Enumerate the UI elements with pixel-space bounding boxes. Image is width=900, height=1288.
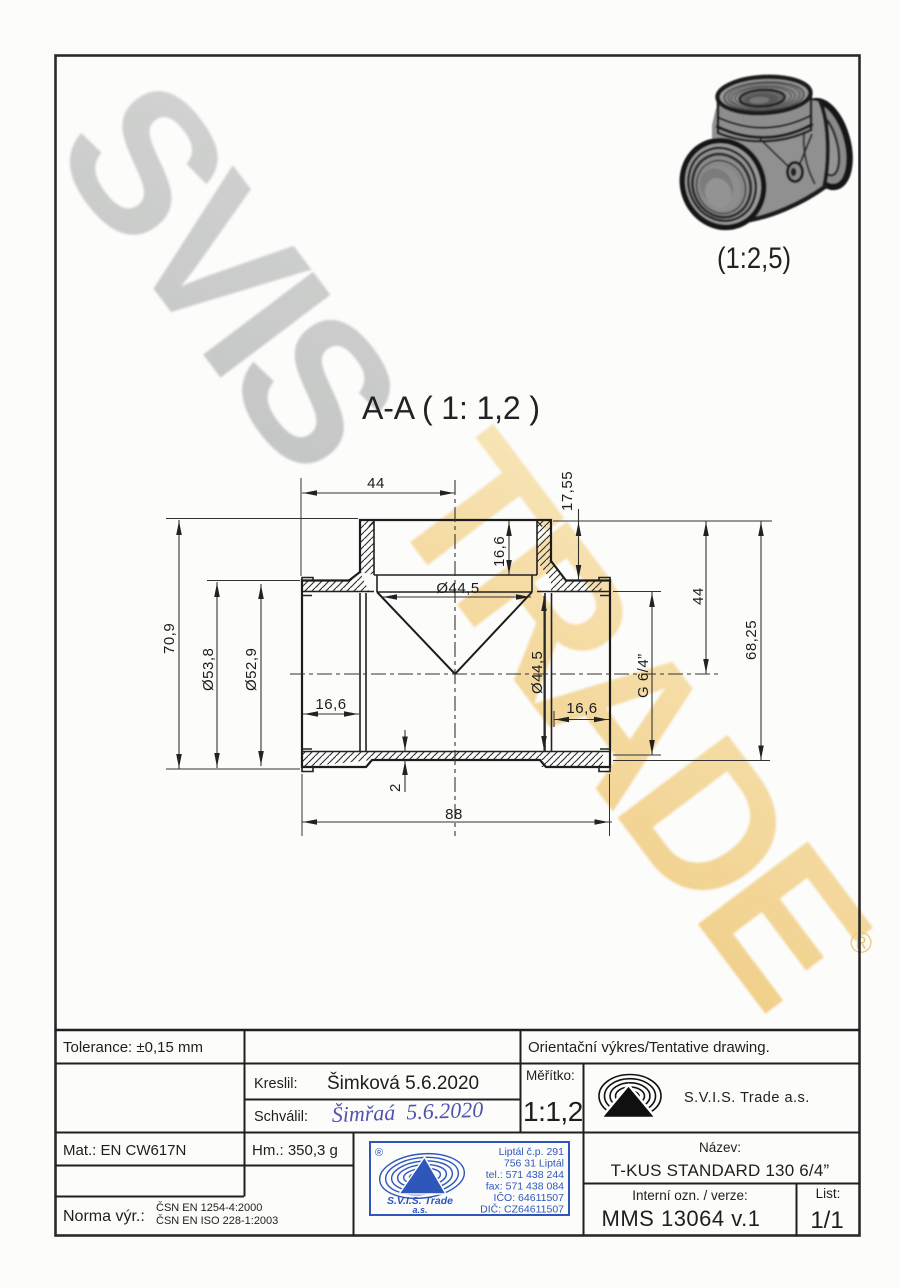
svg-text:1:1,2: 1:1,2 — [523, 1096, 583, 1127]
svg-text:S.V.I.S. Trade a.s.: S.V.I.S. Trade a.s. — [684, 1090, 810, 1106]
svg-text:Orientační výkres/Tentative dr: Orientační výkres/Tentative drawing. — [528, 1039, 770, 1056]
svg-text:2: 2 — [387, 783, 404, 792]
svg-text:Interní ozn. / verze:: Interní ozn. / verze: — [632, 1188, 748, 1203]
svg-text:17,55: 17,55 — [559, 471, 576, 511]
svg-text:(1:2,5): (1:2,5) — [717, 242, 791, 275]
svg-text:T-KUS STANDARD 130 6/4”: T-KUS STANDARD 130 6/4” — [611, 1161, 830, 1180]
svg-text:70,9: 70,9 — [161, 623, 178, 654]
svg-text:Šimková 5.6.2020: Šimková 5.6.2020 — [327, 1072, 479, 1094]
svg-text:Hm.: 350,3 g: Hm.: 350,3 g — [252, 1142, 338, 1159]
svg-text:ČSN EN ISO 228-1:2003: ČSN EN ISO 228-1:2003 — [156, 1214, 278, 1227]
svg-text:IČO: 64611507: IČO: 64611507 — [494, 1191, 565, 1204]
svg-text:Kreslil:: Kreslil: — [254, 1076, 298, 1092]
svg-text:1/1: 1/1 — [810, 1207, 843, 1234]
svg-text:Šimřaá 5.6.2020: Šimřaá 5.6.2020 — [331, 1097, 483, 1127]
svg-text:16,6: 16,6 — [566, 700, 597, 717]
svg-text:a.s.: a.s. — [412, 1205, 427, 1215]
svg-text:Ø44,5: Ø44,5 — [529, 651, 546, 694]
svg-text:756 31 Liptál: 756 31 Liptál — [504, 1158, 564, 1170]
svg-text:A-A ( 1: 1,2 ): A-A ( 1: 1,2 ) — [362, 390, 540, 426]
svg-text:Ø53,8: Ø53,8 — [200, 648, 217, 691]
svg-text:68,25: 68,25 — [743, 620, 760, 660]
svg-text:44: 44 — [367, 475, 385, 492]
svg-text:16,6: 16,6 — [315, 696, 346, 713]
svg-text:Ø44,5: Ø44,5 — [436, 580, 479, 597]
svg-text:G 6/4”: G 6/4” — [635, 653, 652, 698]
svg-text:®: ® — [850, 927, 872, 960]
svg-text:®: ® — [375, 1147, 383, 1159]
svg-text:44: 44 — [690, 587, 707, 605]
svg-text:DIČ: CZ64611507: DIČ: CZ64611507 — [480, 1203, 564, 1216]
svg-text:tel.: 571 438 244: tel.: 571 438 244 — [486, 1169, 564, 1181]
svg-text:Mat.: EN CW617N: Mat.: EN CW617N — [63, 1142, 186, 1159]
svg-text:16,6: 16,6 — [491, 536, 508, 567]
svg-text:Měřítko:: Měřítko: — [526, 1068, 575, 1083]
svg-text:fax: 571 438 084: fax: 571 438 084 — [486, 1181, 564, 1193]
svg-text:88: 88 — [445, 806, 463, 823]
svg-text:List:: List: — [816, 1186, 841, 1201]
svg-text:Tolerance: ±0,15 mm: Tolerance: ±0,15 mm — [63, 1039, 203, 1056]
svg-text:Schválil:: Schválil: — [254, 1109, 308, 1125]
svg-text:Ø52,9: Ø52,9 — [243, 648, 260, 691]
svg-text:Název:: Název: — [699, 1140, 741, 1155]
svg-text:Norma výr.:: Norma výr.: — [63, 1208, 145, 1225]
svg-text:ČSN EN 1254-4:2000: ČSN EN 1254-4:2000 — [156, 1201, 262, 1214]
svg-text:MMS 13064 v.1: MMS 13064 v.1 — [602, 1206, 761, 1231]
svg-text:Liptál č.p. 291: Liptál č.p. 291 — [499, 1146, 565, 1158]
